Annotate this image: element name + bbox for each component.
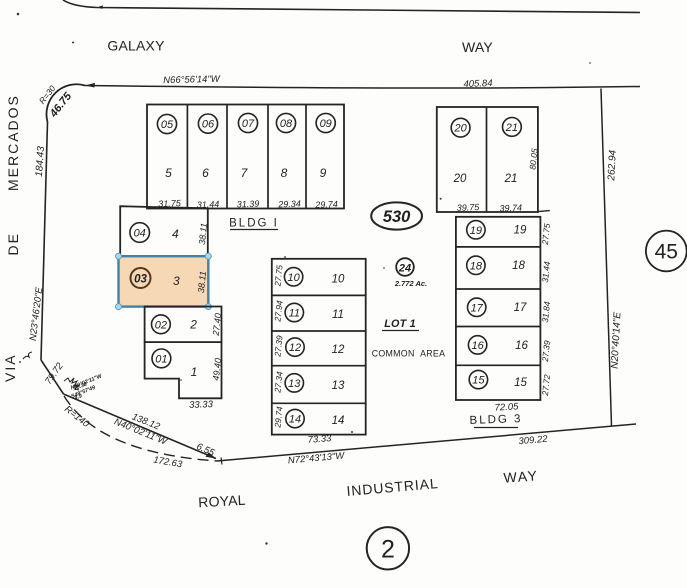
svg-text:9: 9 xyxy=(320,166,327,180)
svg-text:20: 20 xyxy=(453,173,467,185)
svg-text:16: 16 xyxy=(471,340,484,352)
svg-text:19: 19 xyxy=(470,225,482,237)
svg-text:11: 11 xyxy=(332,309,344,321)
svg-text:17: 17 xyxy=(514,302,527,314)
svg-text:17: 17 xyxy=(471,302,484,314)
svg-text:31.84: 31.84 xyxy=(540,301,552,323)
svg-text:6: 6 xyxy=(202,166,209,180)
svg-text:R=140: R=140 xyxy=(62,404,92,431)
svg-text:29.74: 29.74 xyxy=(314,199,338,210)
svg-text:BLDG I: BLDG I xyxy=(229,218,279,230)
svg-text:31.44: 31.44 xyxy=(540,261,552,283)
svg-text:DE: DE xyxy=(5,232,21,255)
svg-text:19: 19 xyxy=(514,225,527,237)
svg-text:ROYAL: ROYAL xyxy=(198,492,246,510)
svg-text:29.34: 29.34 xyxy=(277,199,301,210)
svg-text:21: 21 xyxy=(504,173,518,185)
svg-text:7: 7 xyxy=(241,166,249,180)
svg-text:2: 2 xyxy=(189,318,197,332)
svg-text:04: 04 xyxy=(134,228,146,240)
svg-text:MERCADOS: MERCADOS xyxy=(5,94,21,191)
svg-text:INDUSTRIAL: INDUSTRIAL xyxy=(346,475,439,499)
svg-text:5: 5 xyxy=(165,166,172,180)
svg-text:13: 13 xyxy=(288,378,301,390)
svg-text:12: 12 xyxy=(289,342,301,354)
svg-text:27.39: 27.39 xyxy=(272,335,284,358)
svg-text:15: 15 xyxy=(514,377,527,389)
svg-text:BLDG 3: BLDG 3 xyxy=(469,413,522,427)
svg-text:20: 20 xyxy=(453,123,467,135)
svg-text:09: 09 xyxy=(320,118,332,130)
svg-text:27.39: 27.39 xyxy=(540,340,552,363)
svg-text:14: 14 xyxy=(289,414,301,426)
svg-text:31.39: 31.39 xyxy=(237,199,260,210)
svg-text:16: 16 xyxy=(515,340,528,352)
svg-text:27.94: 27.94 xyxy=(272,300,284,323)
svg-text:08: 08 xyxy=(280,118,293,130)
svg-text:172.63: 172.63 xyxy=(152,455,183,471)
svg-text:405.84: 405.84 xyxy=(463,78,492,90)
svg-text:18: 18 xyxy=(512,260,525,272)
svg-text:72.05: 72.05 xyxy=(494,401,519,413)
svg-text:10: 10 xyxy=(332,274,345,286)
svg-text:27.34: 27.34 xyxy=(272,371,284,394)
svg-text:WAY: WAY xyxy=(503,467,539,485)
svg-text:05: 05 xyxy=(161,119,174,131)
svg-text:27.72: 27.72 xyxy=(540,374,552,397)
svg-text:01: 01 xyxy=(155,353,167,365)
svg-text:262.94: 262.94 xyxy=(606,149,619,182)
svg-text:N20°40'14"E: N20°40'14"E xyxy=(610,311,624,369)
svg-text:27.75: 27.75 xyxy=(540,223,552,246)
svg-text:309.22: 309.22 xyxy=(518,434,549,448)
svg-text:18: 18 xyxy=(470,260,483,272)
svg-text:06: 06 xyxy=(202,119,215,131)
svg-text:2.772 Ac.: 2.772 Ac. xyxy=(394,279,427,288)
svg-text:07: 07 xyxy=(242,118,255,130)
svg-text:3: 3 xyxy=(173,274,180,288)
svg-text:15: 15 xyxy=(472,375,485,387)
svg-text:13: 13 xyxy=(332,380,345,392)
svg-text:VIA: VIA xyxy=(2,353,18,382)
svg-text:21: 21 xyxy=(505,122,518,134)
svg-text:N72°43'13"W: N72°43'13"W xyxy=(287,450,345,466)
svg-text:530: 530 xyxy=(383,208,411,226)
svg-text:39.75: 39.75 xyxy=(457,202,481,213)
svg-text:79.72: 79.72 xyxy=(43,360,66,386)
svg-text:1: 1 xyxy=(191,365,198,379)
svg-text:N66°56'14"W: N66°56'14"W xyxy=(163,74,221,87)
svg-text:02: 02 xyxy=(155,319,167,331)
svg-text:33.33: 33.33 xyxy=(189,399,214,411)
svg-text:LOT 1: LOT 1 xyxy=(384,318,416,330)
svg-text:73.33: 73.33 xyxy=(307,433,332,446)
svg-text:27.75: 27.75 xyxy=(272,264,284,287)
svg-text:45: 45 xyxy=(655,241,678,264)
svg-text:39.74: 39.74 xyxy=(499,203,522,214)
svg-text:14: 14 xyxy=(332,415,345,427)
svg-text:4: 4 xyxy=(172,227,179,241)
svg-text:11: 11 xyxy=(289,308,300,320)
svg-text:COMMON AREA: COMMON AREA xyxy=(372,349,446,359)
svg-text:29.74: 29.74 xyxy=(272,406,284,429)
svg-text:8: 8 xyxy=(281,166,288,180)
svg-text:WAY: WAY xyxy=(462,39,493,55)
svg-text:12: 12 xyxy=(332,344,345,356)
svg-text:2: 2 xyxy=(381,535,395,563)
svg-text:03: 03 xyxy=(134,274,147,286)
svg-text:GALAXY: GALAXY xyxy=(107,38,165,54)
svg-text:10: 10 xyxy=(287,272,300,284)
svg-text:24: 24 xyxy=(398,263,411,275)
svg-text:184.43: 184.43 xyxy=(34,145,47,177)
